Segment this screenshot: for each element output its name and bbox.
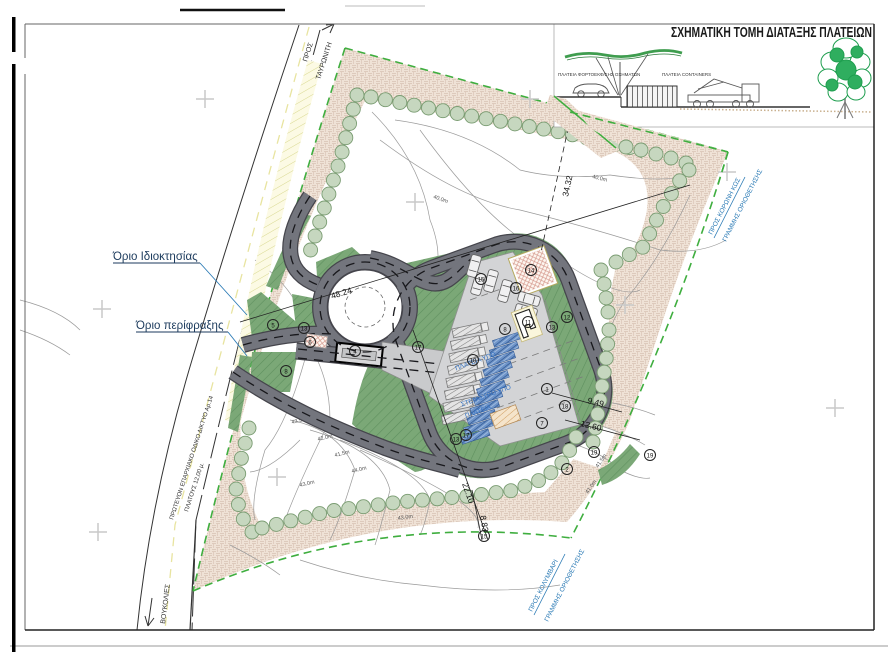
svg-text:ΠΛΑΤΕΙΑ CONTAINERS: ΠΛΑΤΕΙΑ CONTAINERS <box>662 72 711 77</box>
svg-text:11: 11 <box>525 321 532 327</box>
svg-text:13: 13 <box>301 327 308 333</box>
svg-text:Όριο Ιδιοκτησίας: Όριο Ιδιοκτησίας <box>112 251 198 263</box>
svg-text:13: 13 <box>453 438 460 444</box>
svg-text:17: 17 <box>463 434 470 440</box>
svg-text:18: 18 <box>562 405 569 411</box>
svg-text:ΠΛΑΤΕΙΑ ΦΟΡΤΟΕΚΦ/ΣΗΣ ΟΧΗΜΑΤΩΝ: ΠΛΑΤΕΙΑ ΦΟΡΤΟΕΚΦ/ΣΗΣ ΟΧΗΜΑΤΩΝ <box>558 72 640 77</box>
svg-text:14: 14 <box>528 269 535 275</box>
svg-text:15: 15 <box>478 278 485 284</box>
svg-text:13: 13 <box>549 326 556 332</box>
svg-text:Όριο περίφραξης: Όριο περίφραξης <box>135 320 224 332</box>
svg-text:19: 19 <box>591 451 598 457</box>
svg-text:19: 19 <box>647 454 654 460</box>
svg-text:10: 10 <box>470 359 477 365</box>
svg-text:17: 17 <box>415 346 422 352</box>
svg-text:12: 12 <box>564 316 571 322</box>
svg-text:15: 15 <box>481 535 488 541</box>
svg-text:16: 16 <box>513 287 520 293</box>
